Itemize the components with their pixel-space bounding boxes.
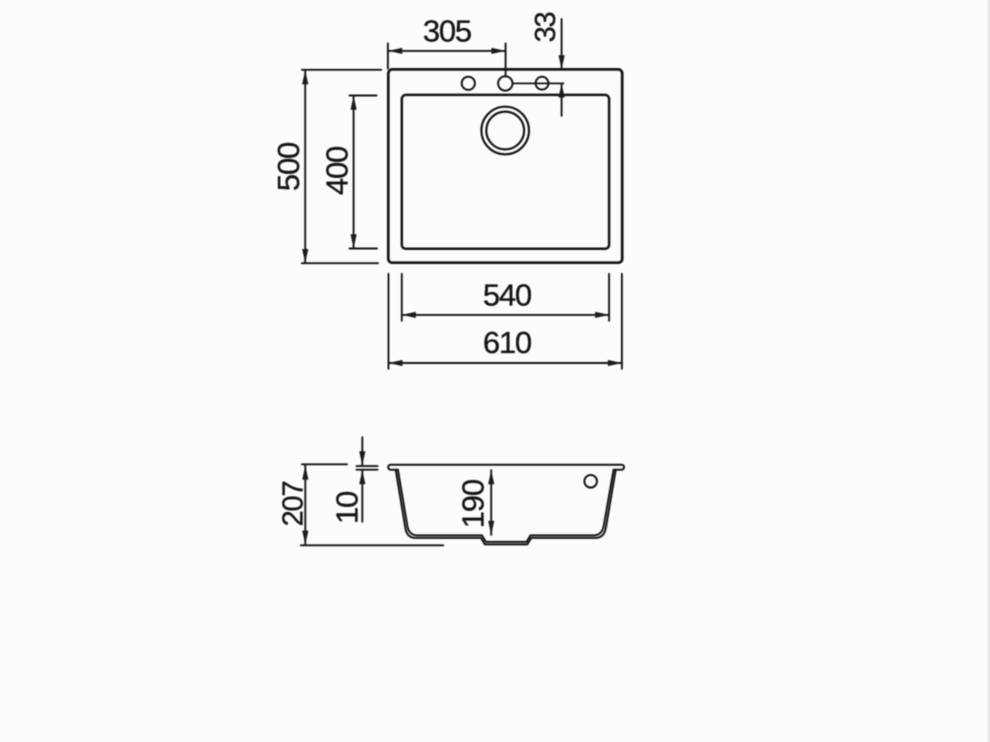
svg-text:400: 400: [319, 146, 354, 195]
svg-text:540: 540: [483, 278, 532, 313]
svg-text:33: 33: [530, 13, 562, 43]
svg-text:190: 190: [456, 479, 491, 528]
svg-text:207: 207: [278, 482, 310, 527]
svg-text:10: 10: [330, 491, 365, 524]
svg-text:500: 500: [271, 142, 306, 191]
svg-text:610: 610: [483, 325, 532, 360]
svg-text:305: 305: [423, 13, 471, 48]
